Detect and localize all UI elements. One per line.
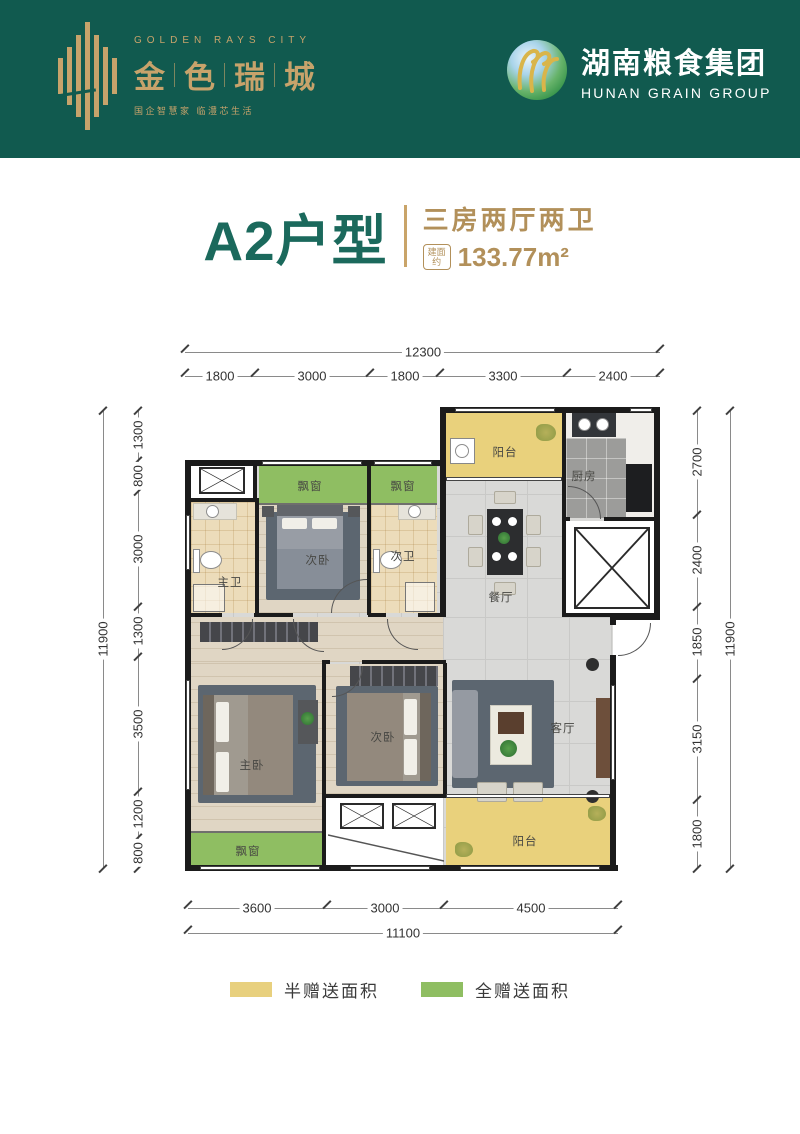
- bay-inner-line: [259, 503, 367, 505]
- window: [350, 866, 430, 870]
- dim-left-seg: 1200: [131, 797, 146, 832]
- legend-swatch-half-gift: [230, 982, 272, 997]
- furniture-plant: [498, 532, 510, 544]
- wall: [254, 613, 293, 617]
- dim-top-total: 12300: [402, 345, 444, 360]
- furniture-pillow: [282, 518, 307, 529]
- furniture-blob: [536, 424, 556, 441]
- furniture-wc: [373, 549, 380, 573]
- room-label-master: 主卧: [240, 757, 265, 773]
- dim-right-seg: 1850: [690, 625, 705, 660]
- wall: [185, 498, 257, 502]
- wall: [562, 521, 566, 617]
- wall: [604, 517, 660, 521]
- dim-left-seg: 1300: [131, 614, 146, 649]
- dim-top-seg: 1800: [388, 369, 423, 384]
- furniture-chair: [494, 491, 516, 504]
- furniture-chair: [526, 547, 541, 567]
- wall: [362, 660, 446, 664]
- dim-left-seg: 800: [131, 462, 146, 490]
- bay-inner-line: [191, 831, 322, 833]
- window: [186, 515, 190, 570]
- dim-left-seg: 3500: [131, 707, 146, 742]
- room-label-dining: 餐厅: [489, 589, 514, 605]
- furniture-plate: [508, 517, 517, 526]
- dim-bottom-seg: 3600: [240, 901, 275, 916]
- furniture-sink: [578, 418, 591, 431]
- window: [374, 461, 432, 465]
- dim-right-total: 11900: [723, 618, 738, 659]
- legend-swatch-full-gift: [421, 982, 463, 997]
- window: [455, 408, 555, 412]
- room-label-balcony-top: 阳台: [493, 444, 518, 460]
- window: [446, 477, 562, 481]
- furniture-shower: [405, 582, 435, 612]
- dim-bottom-total: 11100: [383, 926, 423, 941]
- dim-top-seg: 2400: [596, 369, 631, 384]
- furniture-chair: [513, 782, 543, 802]
- wall: [562, 613, 660, 617]
- furniture-wc: [193, 549, 200, 573]
- dim-top-seg: 3300: [486, 369, 521, 384]
- wall: [443, 663, 447, 798]
- dim-right-seg: 2400: [690, 543, 705, 578]
- dimension-line: [185, 376, 660, 377]
- wall: [654, 407, 660, 620]
- window: [200, 866, 320, 870]
- furniture-sink: [408, 505, 421, 518]
- furniture-night: [348, 506, 360, 517]
- furniture-chair: [477, 782, 507, 802]
- furniture-pillow: [404, 739, 417, 775]
- wall: [610, 617, 616, 625]
- furniture-sink: [455, 444, 469, 458]
- furniture-plant: [301, 712, 314, 725]
- wall: [368, 613, 386, 617]
- furniture-bowl: [200, 551, 222, 569]
- ac-unit: [392, 803, 436, 829]
- furniture-blank2: [248, 695, 293, 795]
- dim-top-seg: 3000: [295, 369, 330, 384]
- room-label-bath2: 次卫: [391, 548, 416, 564]
- wall: [326, 660, 330, 664]
- furniture-chair: [526, 515, 541, 535]
- furniture-plate: [492, 552, 501, 561]
- room-label-living: 客厅: [551, 720, 576, 736]
- dim-right-seg: 2700: [690, 445, 705, 480]
- wall: [185, 613, 222, 617]
- duct-shaft: [199, 467, 245, 494]
- window: [446, 794, 610, 798]
- room-label-kitchen: 厨房: [572, 468, 597, 484]
- wall: [562, 407, 566, 521]
- furniture-plate: [492, 517, 501, 526]
- legend-label-full-gift: 全赠送面积: [475, 977, 570, 1002]
- furniture-ward: [350, 666, 438, 686]
- furniture-sink: [206, 505, 219, 518]
- wall: [253, 460, 257, 502]
- window: [460, 866, 600, 870]
- furniture-chair: [468, 515, 483, 535]
- furniture-tray: [498, 712, 524, 734]
- legend-label-half-gift: 半赠送面积: [284, 977, 379, 1002]
- room-label-bay2: 飘窗: [391, 478, 416, 494]
- furniture-plant: [500, 740, 517, 757]
- room-label-bedroom3: 次卧: [371, 729, 396, 745]
- furniture-pillow: [216, 702, 229, 742]
- furniture-head2: [277, 505, 343, 516]
- furniture-pillow: [404, 699, 417, 735]
- furniture-pillow: [216, 752, 229, 792]
- floor-plan: 阳台 厨房 餐厅 主卫 次卧 次卫 飘窗 飘窗 主卧 次卧 客厅 阳台 飘窗 1…: [0, 0, 800, 1134]
- ac-unit: [340, 803, 384, 829]
- window: [611, 685, 615, 780]
- dim-top-seg: 1800: [203, 369, 238, 384]
- wall: [326, 794, 446, 798]
- legend-item-half-gift: 半赠送面积: [230, 977, 379, 1002]
- furniture-plate: [508, 552, 517, 561]
- furniture-blob: [455, 842, 473, 857]
- bay-inner-line: [371, 503, 437, 505]
- furniture-tv: [596, 698, 611, 778]
- wall: [440, 407, 446, 466]
- furniture-headR: [420, 693, 431, 781]
- furniture-blob: [588, 806, 606, 821]
- furniture-pillow: [312, 518, 337, 529]
- wall: [367, 460, 371, 615]
- dim-left-seg: 3000: [131, 532, 146, 567]
- wall: [255, 498, 259, 615]
- window: [630, 408, 652, 412]
- room-label-bath-master: 主卫: [218, 574, 243, 590]
- furniture-night: [262, 506, 274, 517]
- dim-bottom-seg: 4500: [514, 901, 549, 916]
- wall: [322, 660, 326, 868]
- furniture-stove: [626, 464, 652, 512]
- room-label-bedroom2: 次卧: [306, 552, 331, 568]
- legend: 半赠送面积 全赠送面积: [0, 977, 800, 1002]
- window: [186, 680, 190, 790]
- door-arc: [618, 623, 651, 656]
- room-label-bay-master: 飘窗: [236, 843, 261, 859]
- furniture-sink: [596, 418, 609, 431]
- wall: [440, 460, 446, 615]
- dim-left-total: 11900: [96, 618, 111, 659]
- window: [262, 461, 362, 465]
- furniture-sofa: [452, 690, 478, 778]
- dim-bottom-seg: 3000: [368, 901, 403, 916]
- platform-diagonal: [328, 833, 444, 863]
- dim-right-seg: 1800: [690, 817, 705, 852]
- furniture-chair: [468, 547, 483, 567]
- dim-right-seg: 3150: [690, 722, 705, 757]
- room-label-bay1: 飘窗: [298, 478, 323, 494]
- furniture-headL: [203, 695, 214, 795]
- furniture-dk: [586, 658, 599, 671]
- legend-item-full-gift: 全赠送面积: [421, 977, 570, 1002]
- elevator: [574, 527, 650, 609]
- dim-left-seg: 800: [131, 839, 146, 867]
- room-label-balcony-bottom: 阳台: [513, 833, 538, 849]
- dim-left-seg: 1300: [131, 418, 146, 453]
